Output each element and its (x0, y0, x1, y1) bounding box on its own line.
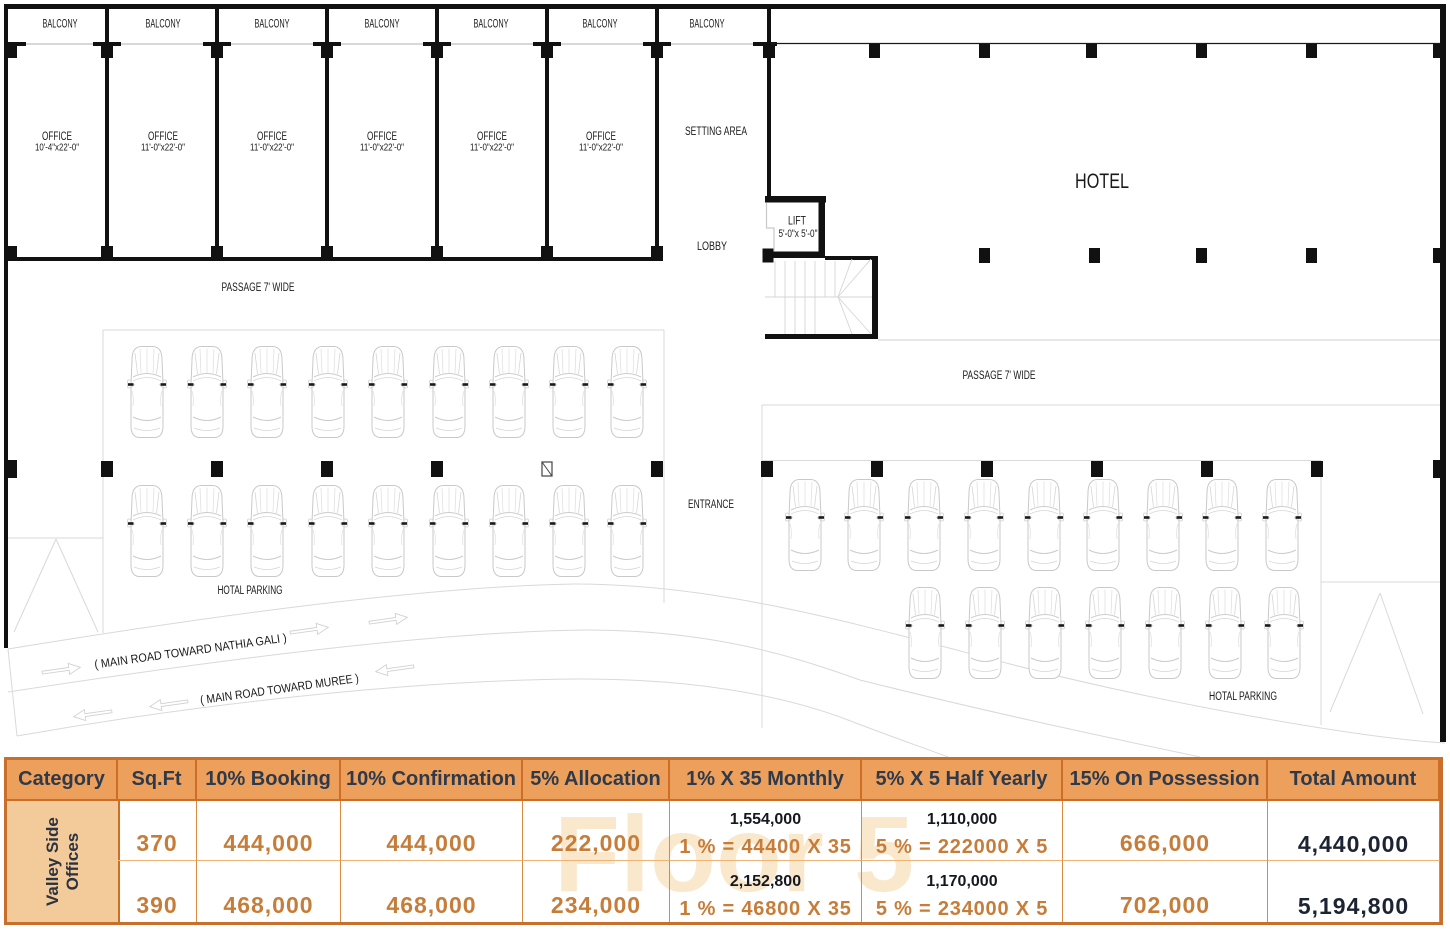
svg-text:SETTING AREA: SETTING AREA (685, 124, 747, 138)
svg-text:BALCONY: BALCONY (365, 19, 400, 31)
svg-text:OFFICE: OFFICE (148, 131, 178, 143)
svg-text:LIFT: LIFT (788, 214, 806, 228)
svg-text:11'-0"x22'-0": 11'-0"x22'-0" (360, 143, 404, 154)
svg-text:HOTEL: HOTEL (1075, 170, 1129, 193)
svg-text:PASSAGE 7' WIDE: PASSAGE 7' WIDE (222, 282, 295, 294)
svg-text:PASSAGE 7' WIDE: PASSAGE 7' WIDE (963, 370, 1036, 382)
svg-text:OFFICE: OFFICE (367, 131, 397, 143)
svg-text:BALCONY: BALCONY (474, 19, 509, 31)
svg-text:BALCONY: BALCONY (255, 19, 290, 31)
svg-text:BALCONY: BALCONY (583, 19, 618, 31)
svg-text:10'-4"x22'-0": 10'-4"x22'-0" (35, 143, 79, 154)
svg-text:BALCONY: BALCONY (146, 19, 181, 31)
svg-text:OFFICE: OFFICE (477, 131, 507, 143)
svg-text:OFFICE: OFFICE (586, 131, 616, 143)
svg-text:( MAIN ROAD TOWARD MUREE ): ( MAIN ROAD TOWARD MUREE ) (199, 671, 359, 707)
svg-text:ENTRANCE: ENTRANCE (688, 499, 734, 511)
svg-text:OFFICE: OFFICE (257, 131, 287, 143)
svg-text:BALCONY: BALCONY (43, 19, 78, 31)
svg-text:OFFICE: OFFICE (42, 131, 72, 143)
svg-text:11'-0"x22'-0": 11'-0"x22'-0" (250, 143, 294, 154)
svg-text:11'-0"x22'-0": 11'-0"x22'-0" (579, 143, 623, 154)
svg-text:HOTAL PARKING: HOTAL PARKING (1209, 691, 1277, 703)
svg-text:11'-0"x22'-0": 11'-0"x22'-0" (141, 143, 185, 154)
svg-text:HOTAL PARKING: HOTAL PARKING (218, 585, 283, 597)
svg-text:LOBBY: LOBBY (697, 241, 727, 253)
svg-text:11'-0"x22'-0": 11'-0"x22'-0" (470, 143, 514, 154)
svg-text:5'-0"x 5'-0": 5'-0"x 5'-0" (779, 228, 818, 240)
svg-text:BALCONY: BALCONY (690, 19, 725, 31)
